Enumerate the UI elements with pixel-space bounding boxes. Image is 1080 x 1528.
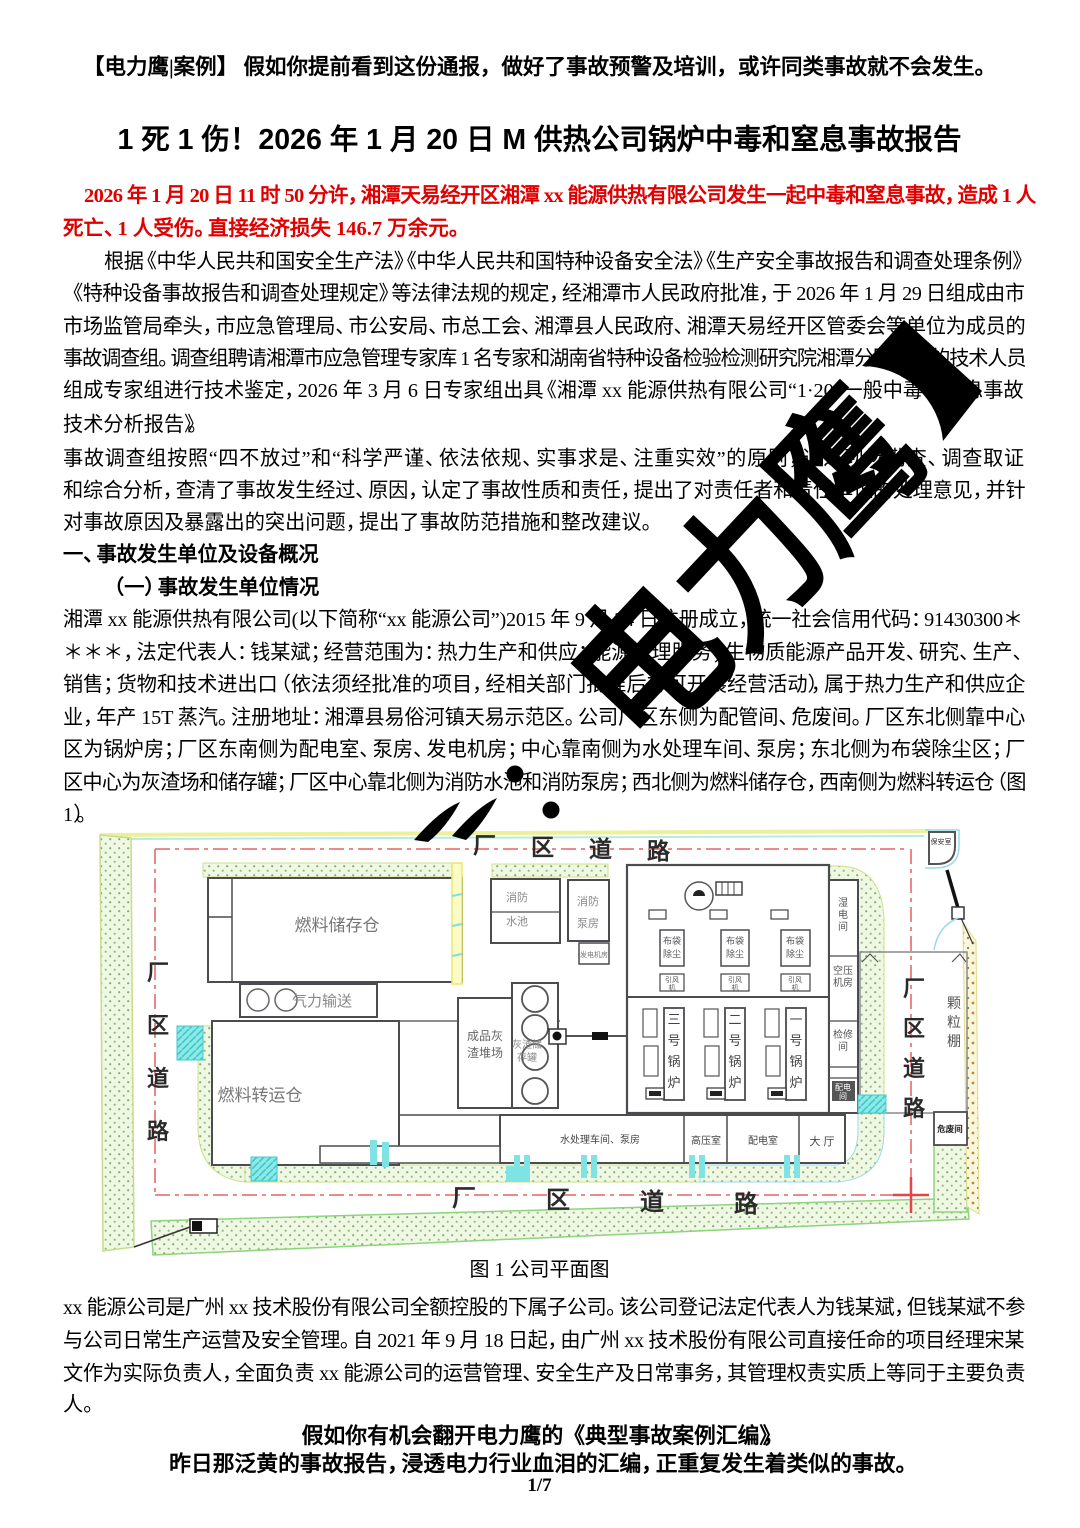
svg-text:除尘: 除尘 xyxy=(726,948,744,959)
svg-text:道: 道 xyxy=(903,1056,925,1081)
svg-text:厂: 厂 xyxy=(473,832,496,858)
svg-text:除尘: 除尘 xyxy=(786,948,804,959)
svg-text:布袋: 布袋 xyxy=(786,935,804,946)
svg-text:道: 道 xyxy=(589,836,612,862)
svg-text:区: 区 xyxy=(147,1013,169,1038)
svg-text:燃料转运仓: 燃料转运仓 xyxy=(218,1086,303,1105)
svg-text:厂: 厂 xyxy=(147,960,169,985)
svg-text:区: 区 xyxy=(903,1016,925,1041)
svg-text:高压室: 高压室 xyxy=(691,1134,721,1147)
svg-text:存罐: 存罐 xyxy=(517,1051,537,1064)
svg-text:配电室: 配电室 xyxy=(748,1134,778,1147)
svg-text:引风: 引风 xyxy=(665,975,679,984)
svg-text:路: 路 xyxy=(147,1119,170,1144)
svg-text:泵房: 泵房 xyxy=(577,917,599,930)
svg-text:水处理车间、泵房: 水处理车间、泵房 xyxy=(560,1133,640,1146)
svg-text:布袋: 布袋 xyxy=(663,935,681,946)
svg-text:区: 区 xyxy=(546,1187,570,1214)
svg-text:消防: 消防 xyxy=(577,894,599,908)
svg-text:颗粒棚: 颗粒棚 xyxy=(947,995,961,1049)
svg-text:道: 道 xyxy=(147,1066,169,1091)
svg-text:渣堆场: 渣堆场 xyxy=(467,1046,503,1060)
svg-text:厂: 厂 xyxy=(452,1185,476,1212)
svg-text:空压机房: 空压机房 xyxy=(833,964,853,989)
svg-text:灰渣储: 灰渣储 xyxy=(512,1038,542,1051)
svg-text:保安室: 保安室 xyxy=(931,837,952,846)
svg-text:除尘: 除尘 xyxy=(663,948,681,959)
svg-text:湿电间: 湿电间 xyxy=(838,897,848,933)
svg-text:路: 路 xyxy=(647,838,671,864)
svg-text:气力输送: 气力输送 xyxy=(292,993,352,1010)
svg-text:机: 机 xyxy=(669,983,676,992)
svg-text:发电机房: 发电机房 xyxy=(580,950,608,959)
svg-text:路: 路 xyxy=(903,1096,926,1121)
svg-text:引风: 引风 xyxy=(728,975,742,984)
svg-text:引风: 引风 xyxy=(788,975,802,984)
svg-text:厂: 厂 xyxy=(903,976,925,1001)
svg-text:成品灰: 成品灰 xyxy=(467,1029,503,1043)
svg-text:道: 道 xyxy=(640,1188,664,1216)
svg-text:路: 路 xyxy=(734,1190,759,1218)
svg-text:水池: 水池 xyxy=(506,915,528,928)
svg-text:危废间: 危废间 xyxy=(936,1124,963,1134)
svg-text:布袋: 布袋 xyxy=(726,935,744,946)
svg-text:机: 机 xyxy=(732,983,739,992)
svg-text:燃料储存仓: 燃料储存仓 xyxy=(295,916,380,935)
svg-text:机: 机 xyxy=(792,983,799,992)
svg-text:大 厅: 大 厅 xyxy=(809,1134,834,1148)
svg-text:区: 区 xyxy=(531,834,554,860)
svg-text:消防: 消防 xyxy=(506,890,528,904)
